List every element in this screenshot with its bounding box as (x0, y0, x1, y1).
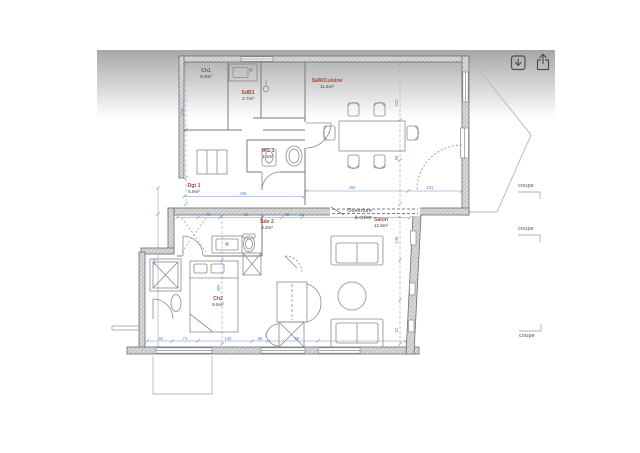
dimension-label: 52 (394, 327, 399, 332)
section-markers: coupecoupecoupe (518, 183, 541, 339)
closet-bottom (266, 322, 304, 347)
room-area-label: 3.3m² (261, 225, 273, 230)
room-area-label: 2.7m² (242, 96, 254, 101)
room-area-label: 12.9m² (374, 223, 389, 228)
room-area-label: 9.4m² (200, 74, 212, 79)
washbasin (171, 295, 181, 312)
floor-plan-canvas: Ch19.4m²SdB12.7m²SàM/Cuisine11.5m²WC 11.… (0, 0, 640, 453)
left-wall-stub (112, 326, 139, 330)
opening-note-line: Ouverture (347, 208, 372, 214)
coffee-table (338, 282, 366, 310)
dim-tick (184, 202, 188, 206)
dimension-label: 60 (295, 336, 300, 341)
wardrobe (277, 282, 321, 322)
dimension-label: 63 (244, 212, 249, 217)
dimension-label: 220 (394, 99, 399, 107)
room-area-label: 11.5m² (320, 84, 334, 89)
dimension-label: 151 (427, 185, 435, 190)
dimension-label: 229 (180, 108, 185, 116)
coupe-label: coupe (518, 226, 534, 232)
dimension-label: 348 (240, 191, 248, 196)
balcony-outline (153, 356, 212, 394)
coupe-label: coupe (518, 183, 534, 189)
dimension-label: 140 (225, 336, 233, 341)
opening-note-line: à créer (355, 215, 373, 221)
coupe-bracket (518, 192, 540, 199)
dimension-label: 136 (394, 236, 399, 244)
dimension-label: 15 (300, 212, 305, 217)
coupe-label: coupe (519, 333, 535, 339)
dimension-label: 35 (285, 212, 290, 217)
room-area-label: 9.5m² (212, 302, 224, 307)
dim-tick (398, 202, 402, 206)
dimension-label: 71 (183, 336, 188, 341)
coupe-bracket (519, 324, 541, 331)
dimension-label: 50 (159, 336, 164, 341)
toilet-2 (243, 234, 255, 252)
room-area-label: 1.5m² (262, 154, 274, 159)
vanity (212, 236, 242, 253)
sofa (331, 236, 383, 265)
sofa-2 (331, 319, 383, 347)
dimension-label: 73 (206, 212, 211, 217)
dimension-labels: 3482651517363351550711408860229378300220… (152, 99, 434, 341)
plan-viewer: Ch19.4m²SdB12.7m²SàM/Cuisine11.5m²WC 11.… (0, 0, 640, 453)
closet (197, 150, 227, 174)
dimension-label: 300 (216, 284, 221, 292)
dimension-label: 378 (152, 258, 157, 266)
dimension-label: 88 (394, 155, 399, 160)
dimension-label: 88 (258, 336, 263, 341)
room-area-label: 5.9m² (188, 189, 200, 194)
dimension-label: 265 (349, 185, 357, 190)
coupe-bracket (518, 235, 540, 242)
